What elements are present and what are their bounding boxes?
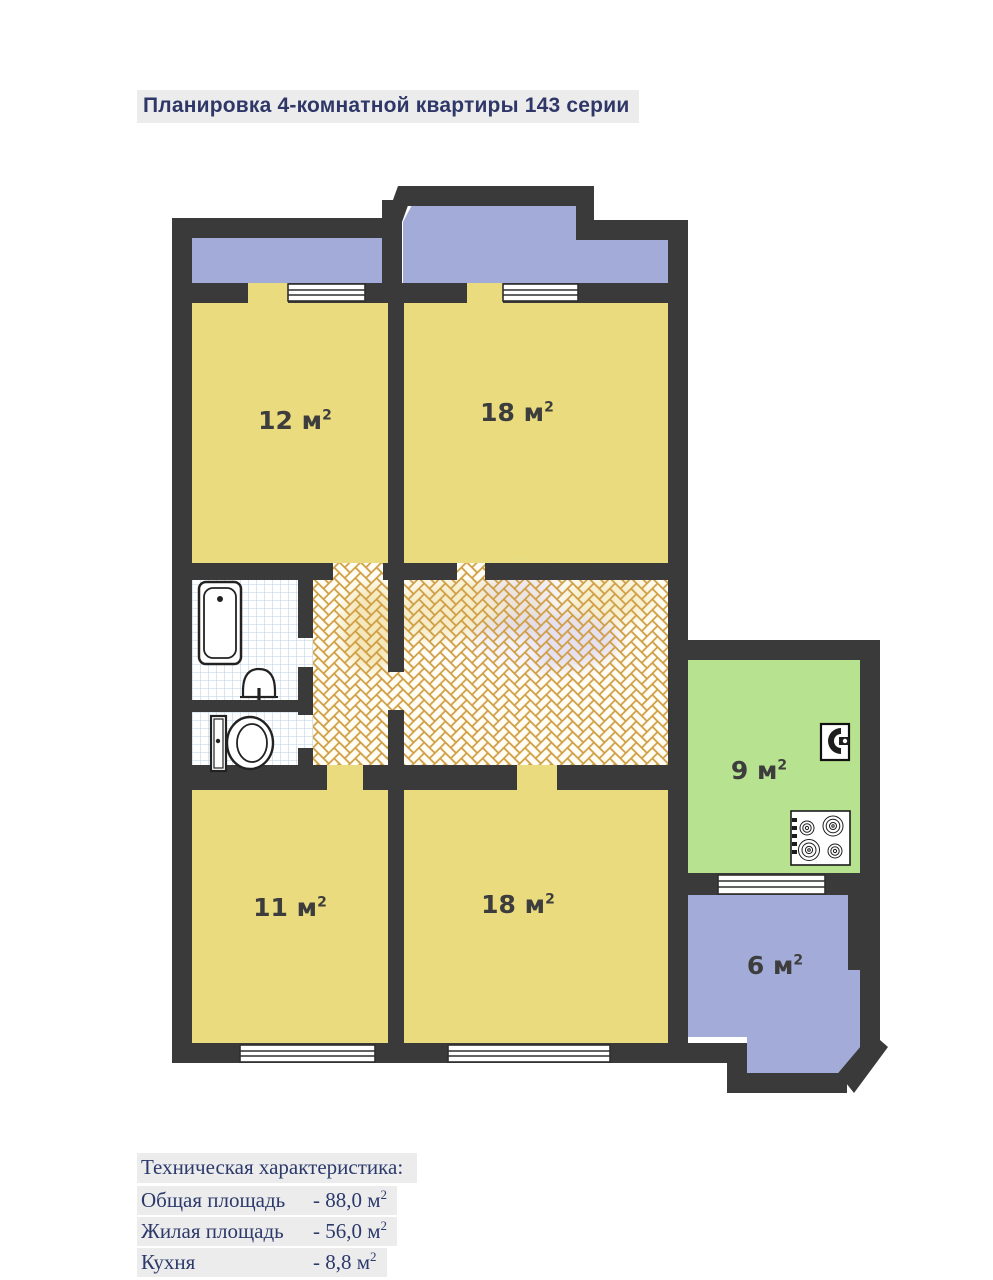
- room-label-living-18-bottom: 18 м2: [453, 890, 583, 919]
- page-title: Планировка 4-комнатной квартиры 143 сери…: [137, 90, 639, 123]
- room-area-text: 6 м: [747, 951, 794, 980]
- door-room-11: [327, 765, 363, 790]
- balcony-door-room-12: [248, 283, 288, 303]
- spec-value-sup: 2: [381, 1187, 388, 1202]
- bathroom-door: [298, 638, 313, 667]
- balcony-door-room-18: [467, 283, 503, 303]
- toilet: [211, 716, 273, 771]
- balcony-top-right-floor: [403, 203, 668, 283]
- room-area-text: 12 м: [258, 406, 322, 435]
- spec-value-text: - 8,8 м: [313, 1250, 370, 1274]
- spec-value-sup: 2: [370, 1249, 377, 1264]
- room-area-sup: 2: [545, 892, 555, 908]
- window-room-11: [240, 1045, 375, 1062]
- room-label-living-11: 11 м2: [225, 893, 355, 922]
- room-area-sup: 2: [322, 408, 332, 424]
- spec-value: - 8,8 м2: [313, 1250, 377, 1274]
- room-area-sup: 2: [317, 895, 327, 911]
- room-area-sup: 2: [793, 953, 803, 969]
- window-balcony-left: [288, 284, 365, 301]
- room-area-sup: 2: [777, 758, 787, 774]
- room-area-text: 18 м: [481, 890, 545, 919]
- window-room-18-bottom: [448, 1045, 610, 1062]
- room-label-living-18-top: 18 м2: [452, 398, 582, 427]
- door-room-18-bottom: [517, 765, 557, 790]
- balcony-top-left-floor: [192, 238, 382, 283]
- room-area-text: 18 м: [480, 398, 544, 427]
- window-balcony-right: [503, 284, 578, 301]
- door-room-12: [333, 563, 383, 580]
- room-area-text: 11 м: [253, 893, 317, 922]
- spec-row-living-area: Жилая площадь- 56,0 м2: [137, 1217, 397, 1246]
- hall-passage: [388, 672, 404, 710]
- spec-value-text: - 56,0 м: [313, 1219, 381, 1243]
- spec-value: - 88,0 м2: [313, 1188, 387, 1212]
- spec-value-text: - 88,0 м: [313, 1188, 381, 1212]
- spec-row-kitchen-area: Кухня- 8,8 м2: [137, 1248, 387, 1277]
- spec-value: - 56,0 м2: [313, 1219, 387, 1243]
- page: Планировка 4-комнатной квартиры 143 сери…: [0, 0, 993, 1280]
- kitchen-sink: [821, 724, 849, 760]
- wc-door: [298, 715, 313, 748]
- window-kitchen: [718, 875, 825, 894]
- room-18-top-floor: [404, 303, 668, 563]
- floor-plan: [0, 0, 993, 1280]
- specs-block: Техническая характеристика: Общая площад…: [137, 1153, 417, 1279]
- room-area-text: 9 м: [731, 756, 778, 785]
- room-area-sup: 2: [544, 400, 554, 416]
- room-label-living-12: 12 м2: [230, 406, 360, 435]
- spec-label: Общая площадь: [141, 1188, 313, 1213]
- room-label-balcony: 6 м2: [710, 951, 840, 980]
- spec-row-total-area: Общая площадь- 88,0 м2: [137, 1186, 397, 1215]
- stove: [791, 811, 850, 865]
- spec-label: Жилая площадь: [141, 1219, 313, 1244]
- bathtub: [199, 582, 241, 664]
- spec-value-sup: 2: [381, 1218, 388, 1233]
- hallway-floor: [313, 572, 668, 767]
- spec-label: Кухня: [141, 1250, 313, 1275]
- door-room-18-top: [457, 563, 485, 580]
- room-label-kitchen: 9 м2: [694, 756, 824, 785]
- specs-heading: Техническая характеристика:: [137, 1153, 417, 1183]
